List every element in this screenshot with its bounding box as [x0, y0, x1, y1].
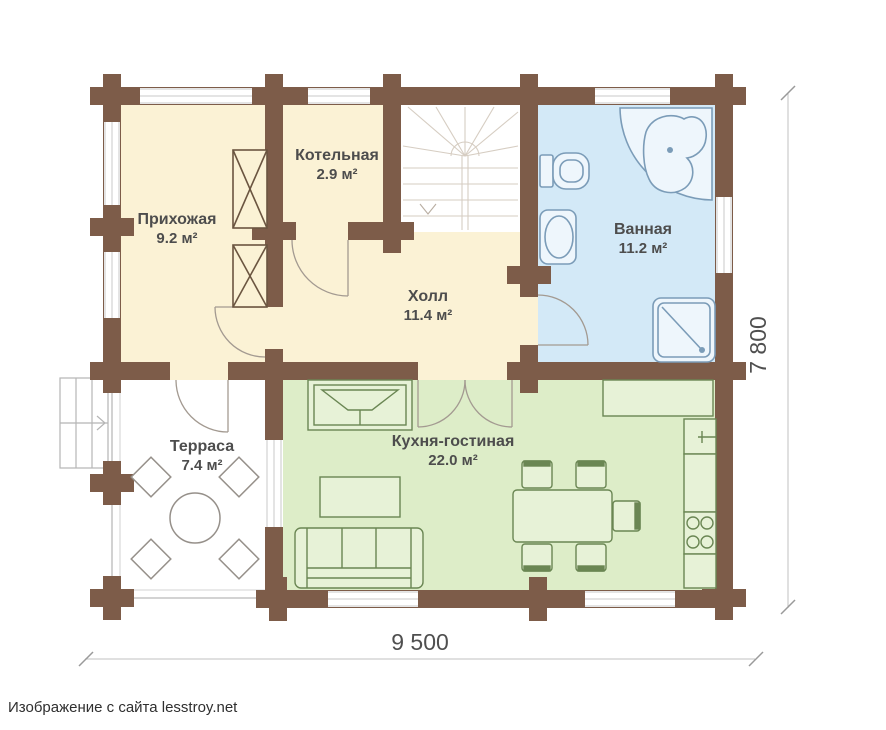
stove: [684, 512, 716, 554]
terrace-table: [170, 493, 220, 543]
closets: [233, 150, 267, 307]
room-label-kitchen-living: Кухня-гостиная 22.0 м²: [392, 432, 515, 471]
closet: [233, 150, 267, 228]
room-area: 11.2 м²: [614, 240, 672, 259]
log-joint: [90, 576, 134, 620]
window: [595, 88, 670, 104]
sink: [540, 210, 576, 264]
chair-back: [578, 566, 604, 571]
terrace-chair: [131, 539, 171, 579]
chair-back: [578, 461, 604, 466]
entry-steps: [60, 378, 108, 468]
kitchen-sink: [684, 419, 716, 454]
room-area: 7.4 м²: [170, 457, 234, 476]
fireplace: [308, 380, 412, 430]
door-terrace: [176, 380, 228, 432]
window: [104, 122, 120, 212]
chair-back: [635, 503, 640, 529]
room-label-hallway: Прихожая 9.2 м²: [138, 210, 217, 249]
kitchen-counter-bottom: [684, 554, 716, 588]
window: [104, 252, 120, 318]
kitchen-counter-top: [603, 380, 713, 416]
room-label-terrace: Терраса 7.4 м²: [170, 437, 234, 476]
window: [328, 591, 418, 607]
window: [585, 591, 675, 607]
room-area: 2.9 м²: [295, 166, 379, 185]
room-name: Терраса: [170, 437, 234, 457]
toilet: [540, 153, 589, 189]
room-name: Кухня-гостиная: [392, 432, 515, 452]
closet: [233, 245, 267, 307]
sofa: [295, 528, 423, 588]
room-label-boiler: Котельная 2.9 м²: [295, 146, 379, 185]
terrace-chair: [131, 457, 171, 497]
room-name: Прихожая: [138, 210, 217, 230]
wall-right: [715, 87, 733, 608]
window: [716, 197, 732, 273]
chair-back: [524, 461, 550, 466]
coffee-table: [320, 477, 400, 517]
shower: [653, 298, 715, 362]
room-area: 11.4 м²: [404, 307, 453, 326]
room-area: 9.2 м²: [138, 230, 217, 249]
kitchen-counter-right: [684, 454, 716, 512]
dimension-line-right: [781, 86, 795, 614]
room-name: Холл: [404, 287, 453, 307]
window: [308, 88, 378, 104]
dimension-height-label: 7 800: [745, 316, 771, 374]
source-caption: Изображение с сайта lesstroy.net: [8, 699, 237, 716]
terrace-chair: [219, 539, 259, 579]
room-name: Ванная: [614, 220, 672, 240]
room-area: 22.0 м²: [392, 452, 515, 471]
window: [266, 440, 282, 527]
room-label-hall: Холл 11.4 м²: [404, 287, 453, 326]
window: [140, 88, 258, 104]
floor-plan-image: 9 500 7 800 Прихожая 9.2 м² Котельная 2.…: [0, 0, 886, 730]
room-name: Котельная: [295, 146, 379, 166]
floor-plan-graphics: 9 500 7 800: [0, 0, 886, 730]
dimension-width-label: 9 500: [391, 629, 449, 655]
room-label-bathroom: Ванная 11.2 м²: [614, 220, 672, 259]
chair-back: [524, 566, 550, 571]
dining-table: [513, 490, 612, 542]
